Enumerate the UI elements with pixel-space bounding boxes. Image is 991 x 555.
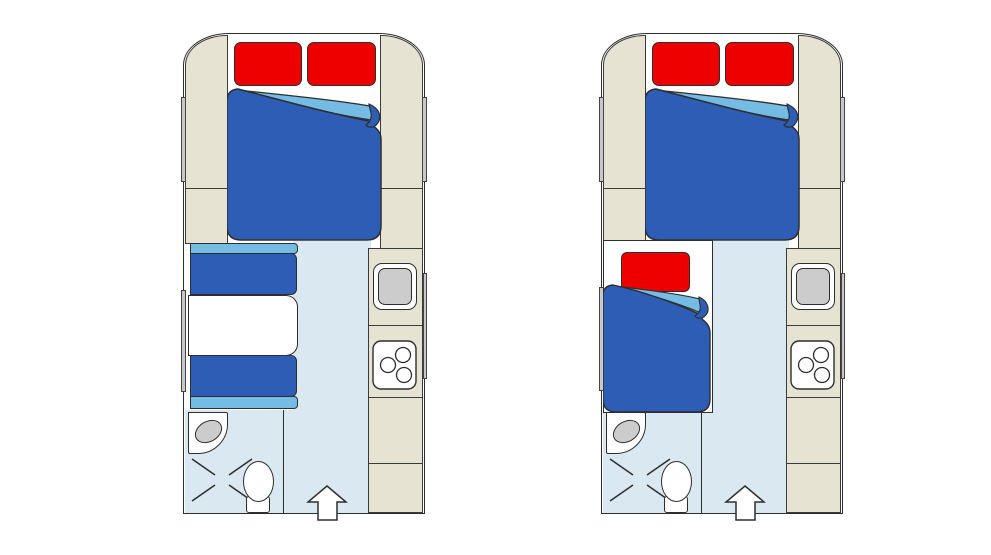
- cabinet-front-left: [603, 35, 646, 189]
- burner: [396, 348, 411, 363]
- burner: [814, 348, 829, 363]
- burner: [381, 358, 396, 373]
- side-window-right-kitchen: [841, 273, 845, 379]
- dinette-bench-seat: [190, 253, 297, 295]
- kitchen-cabinet-rear: [368, 463, 423, 513]
- side-window-left-front: [599, 97, 604, 182]
- kitchen-cabinet-lower: [368, 397, 423, 464]
- side-window-right-kitchen: [423, 273, 427, 379]
- pillow: [307, 42, 376, 86]
- double-bed-duvet: [645, 87, 801, 243]
- pillow: [652, 42, 720, 86]
- burner: [815, 368, 830, 383]
- dinette-backrest: [190, 396, 298, 409]
- burner: [799, 358, 814, 373]
- cabinet-front-right: [798, 35, 841, 189]
- floorplan-left: [183, 33, 425, 514]
- cabinet-front-right-lower: [798, 188, 841, 249]
- kitchen-cabinet-rear: [786, 463, 841, 513]
- entrance-arrow: [724, 485, 766, 522]
- bathroom-partition-wall: [283, 410, 284, 513]
- side-window-left-dinette: [181, 290, 186, 392]
- dinette-bench-seat: [190, 355, 297, 397]
- kitchen-sink-basin: [378, 268, 412, 305]
- double-bed-duvet: [227, 87, 383, 243]
- kitchen-sink-basin: [796, 268, 830, 305]
- entrance-arrow: [306, 485, 348, 522]
- pillow: [725, 42, 794, 86]
- kitchen-cabinet-lower: [786, 397, 841, 464]
- aisle-floor: [293, 241, 371, 513]
- bathroom-partition-wall: [701, 410, 702, 513]
- cabinet-front-left-lower: [603, 188, 646, 244]
- side-window-right-front: [840, 97, 845, 182]
- pillow: [234, 42, 302, 86]
- toilet-bowl: [661, 461, 692, 502]
- three-burner-hob: [372, 340, 418, 391]
- side-window-left-front: [181, 97, 186, 182]
- caravan-floorplan-figure: [0, 0, 991, 555]
- aisle-floor: [711, 241, 789, 513]
- cabinet-front-right: [380, 35, 423, 189]
- single-bed-duvet: [603, 283, 713, 413]
- dinette-table: [188, 295, 298, 356]
- floorplan-right: [601, 33, 843, 514]
- burner: [397, 368, 412, 383]
- toilet-bowl: [243, 461, 274, 502]
- side-window-right-front: [422, 97, 427, 182]
- cabinet-front-right-lower: [380, 188, 423, 249]
- three-burner-hob: [790, 340, 836, 391]
- cabinet-front-left: [185, 35, 228, 189]
- cabinet-front-left-lower: [185, 188, 228, 244]
